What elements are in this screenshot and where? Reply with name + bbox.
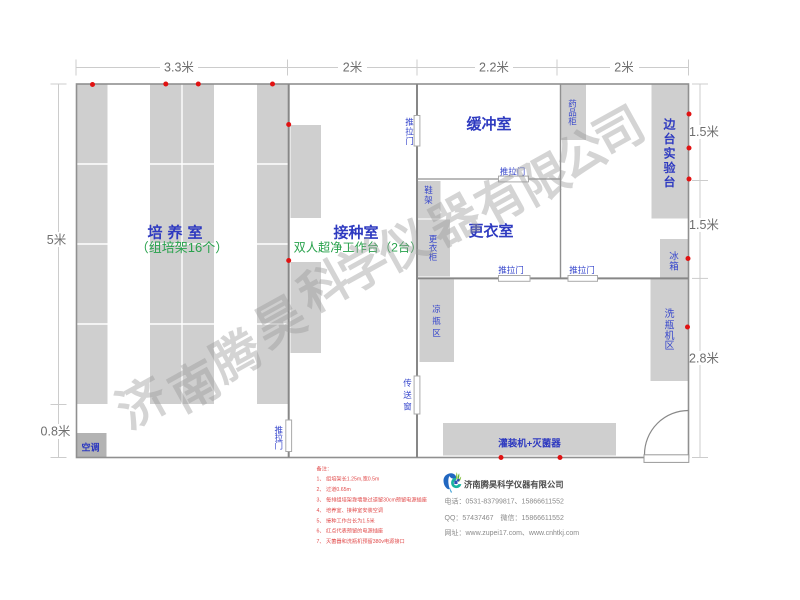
svg-text:2、 过道0.65m: 2、 过道0.65m xyxy=(317,485,351,493)
svg-text:空调: 空调 xyxy=(81,442,99,453)
svg-text:推拉门: 推拉门 xyxy=(405,117,414,146)
svg-text:济南腾昊科学仪器有限公司: 济南腾昊科学仪器有限公司 xyxy=(464,479,564,489)
svg-text:4、 培养室、接种室安装空调: 4、 培养室、接种室安装空调 xyxy=(317,506,384,514)
svg-text:灌装机+灭菌器: 灌装机+灭菌器 xyxy=(498,438,561,450)
svg-text:洗瓶机区: 洗瓶机区 xyxy=(665,308,675,352)
svg-text:5米: 5米 xyxy=(47,233,67,247)
svg-text:冰箱: 冰箱 xyxy=(669,251,679,273)
svg-text:药品柜: 药品柜 xyxy=(568,99,577,127)
svg-text:7、 灭菌器和洗瓶机预留380v电源接口: 7、 灭菌器和洗瓶机预留380v电源接口 xyxy=(317,537,405,545)
svg-text:2.2米: 2.2米 xyxy=(479,61,509,75)
svg-text:推拉门: 推拉门 xyxy=(275,425,284,451)
svg-text:2米: 2米 xyxy=(614,61,634,75)
svg-text:推拉门: 推拉门 xyxy=(569,265,595,275)
svg-text:2米: 2米 xyxy=(343,61,363,75)
svg-text:备注：: 备注： xyxy=(317,464,333,472)
svg-text:边台实验台: 边台实验台 xyxy=(662,117,676,189)
svg-text:3、 每排组培架靠墙靠过道留30cm预留电源插座: 3、 每排组培架靠墙靠过道留30cm预留电源插座 xyxy=(317,496,427,504)
svg-text:网址：www.zupei17.com、www.cnhtkj.: 网址：www.zupei17.com、www.cnhtkj.com xyxy=(445,528,580,537)
svg-text:推拉门: 推拉门 xyxy=(498,265,524,275)
svg-text:1、 组培架长1.25m,宽0.5m: 1、 组培架长1.25m,宽0.5m xyxy=(317,475,380,483)
svg-text:QQ：57437467 微信：15866611552: QQ：57437467 微信：15866611552 xyxy=(445,513,564,522)
svg-text:传送窗: 传送窗 xyxy=(403,378,412,412)
svg-text:5、 接种工作台长为1.5米: 5、 接种工作台长为1.5米 xyxy=(317,516,376,524)
svg-text:培养室: 培养室 xyxy=(147,224,207,242)
svg-text:1.5米: 1.5米 xyxy=(689,218,719,232)
svg-text:1.5米: 1.5米 xyxy=(689,125,719,139)
svg-text:（组培架16个）: （组培架16个） xyxy=(136,240,228,255)
svg-text:6、 红点代表预留的电源插座: 6、 红点代表预留的电源插座 xyxy=(317,527,384,535)
svg-text:0.8米: 0.8米 xyxy=(41,425,71,439)
svg-text:2.8米: 2.8米 xyxy=(689,352,719,366)
svg-text:电话：0531-83799817、15866611552: 电话：0531-83799817、15866611552 xyxy=(445,496,564,505)
svg-text:3.3米: 3.3米 xyxy=(164,61,194,75)
svg-text:缓冲室: 缓冲室 xyxy=(466,115,511,133)
svg-text:凉瓶区: 凉瓶区 xyxy=(432,304,441,338)
